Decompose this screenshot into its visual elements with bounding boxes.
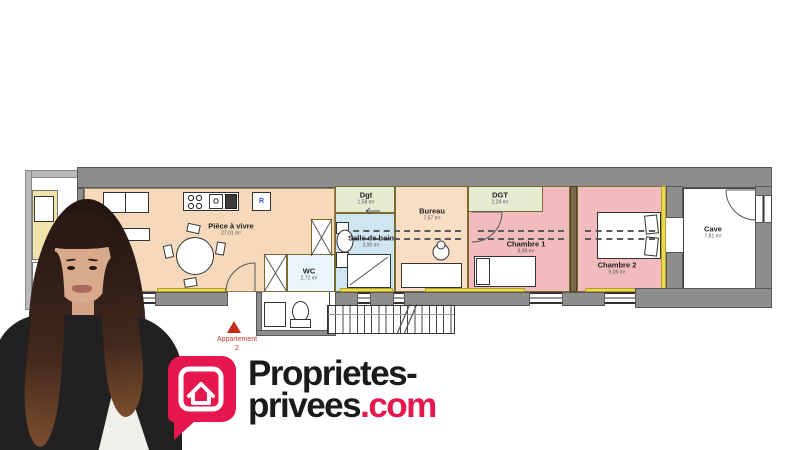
wall-bottom <box>562 292 605 306</box>
wall <box>755 186 772 196</box>
closet <box>311 219 332 256</box>
apartment-marker-icon <box>227 321 241 333</box>
room-label-dgt1: Dgt 1,58 m² <box>358 191 375 206</box>
wall <box>25 170 78 178</box>
window <box>530 292 562 304</box>
window <box>394 292 404 304</box>
staircase-line <box>328 314 454 315</box>
wall-bottom <box>404 292 530 306</box>
wall-bottom <box>370 292 394 306</box>
toilet-tank <box>290 319 311 328</box>
window <box>358 292 370 304</box>
apartment-marker-label: Appartement 2 <box>217 336 257 354</box>
agent-photo <box>0 193 195 450</box>
staircase <box>327 305 455 334</box>
logo-text: Proprietes- privees.com <box>248 358 436 422</box>
wall <box>666 186 683 218</box>
agent-eye <box>67 266 75 270</box>
fridge-label: R <box>259 198 264 205</box>
room-label-bathroom: Salle de bain 3,90 m² <box>348 234 394 249</box>
ceiling-dashes <box>585 230 655 240</box>
cellar-window <box>755 196 772 222</box>
logo-domain: .com <box>360 386 436 425</box>
room-label-bedroom1: Chambre 1 8,99 m² <box>507 240 546 255</box>
wall-bottom <box>635 288 772 308</box>
desk <box>401 263 462 288</box>
wall <box>570 186 577 292</box>
logo-line2: privees.com <box>248 390 436 422</box>
brand-logo: Proprietes- privees.com <box>168 356 436 442</box>
logo-house-icon <box>168 356 238 442</box>
wall <box>256 330 336 336</box>
room-label-living: Pièce à vivre 27,01 m² <box>208 222 253 237</box>
room-label-cellar: Cave 7,81 m² <box>704 225 722 240</box>
wall-top <box>77 167 772 188</box>
room-label-office: Bureau 7,57 m² <box>419 207 445 222</box>
room-label-bedroom2: Chambre 2 9,06 m² <box>598 261 637 276</box>
kitchen-sink <box>209 194 223 209</box>
room-label-wc: WC 2,72 m² <box>301 267 318 282</box>
wall-bottom <box>335 292 358 306</box>
room-label-dgt2: DGT 2,24 m² <box>492 191 509 206</box>
cabinet <box>264 302 286 327</box>
agent-eye <box>89 266 97 270</box>
fridge: R <box>252 192 271 211</box>
kitchen-appliance <box>225 194 237 209</box>
shower <box>347 254 391 288</box>
agent-mouth <box>72 285 92 293</box>
listing-image: R <box>0 0 800 450</box>
ceiling-dashes <box>478 230 564 240</box>
pillow <box>476 258 490 285</box>
window <box>605 292 635 304</box>
closet <box>264 254 287 292</box>
